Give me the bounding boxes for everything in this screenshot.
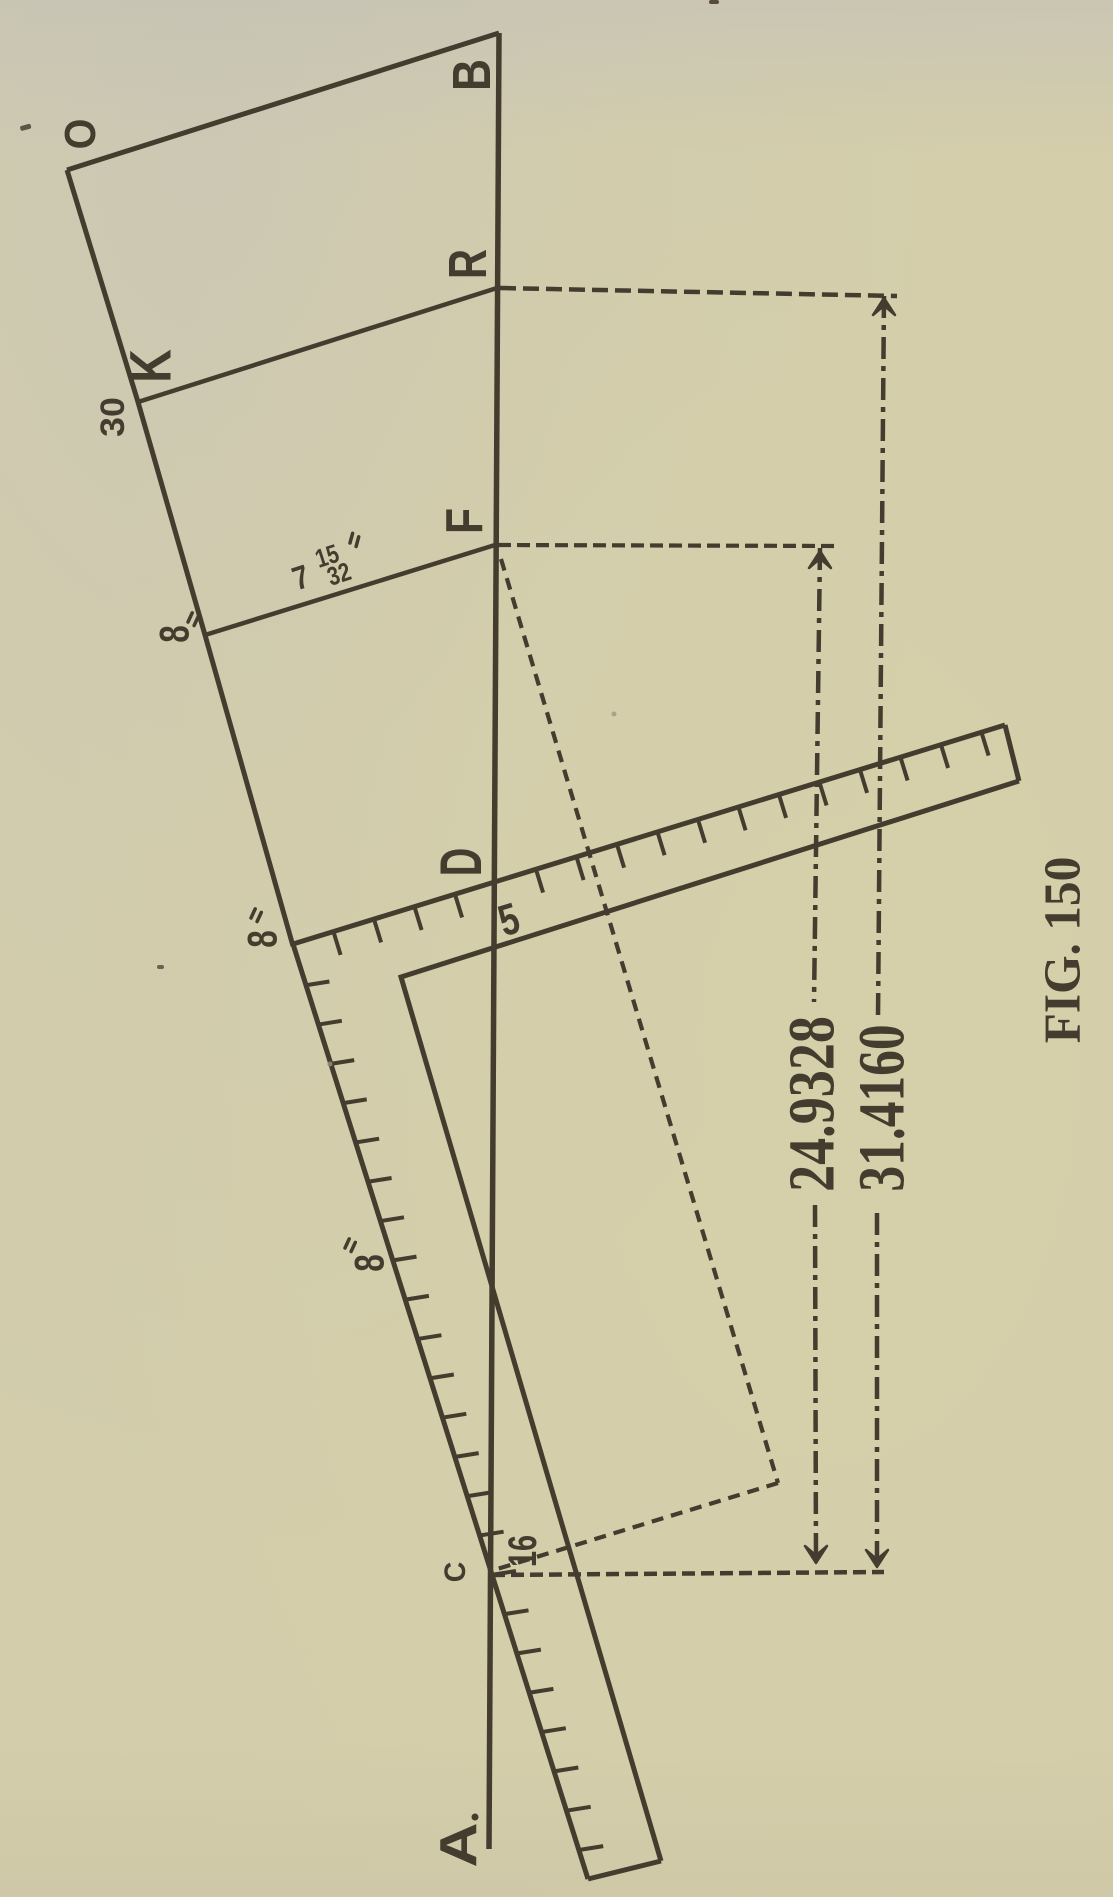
svg-text:C: C [440, 1562, 473, 1583]
svg-text:30: 30 [94, 397, 132, 437]
svg-text:O: O [55, 119, 104, 150]
svg-text:8: 8 [345, 1254, 393, 1272]
svg-text:16: 16 [501, 1535, 546, 1567]
svg-text:D: D [428, 848, 493, 876]
svg-text:8: 8 [150, 625, 198, 643]
svg-text:8: 8 [238, 930, 286, 948]
svg-text:31.4160: 31.4160 [844, 1024, 918, 1191]
svg-text:24.9328: 24.9328 [775, 1016, 848, 1192]
svg-text:A: A [430, 1822, 488, 1867]
svg-text:B: B [442, 59, 502, 91]
svg-text:K: K [118, 349, 183, 383]
svg-text:F: F [436, 508, 494, 534]
svg-text:R: R [438, 249, 499, 279]
svg-text:FIG. 150: FIG. 150 [1033, 857, 1090, 1044]
